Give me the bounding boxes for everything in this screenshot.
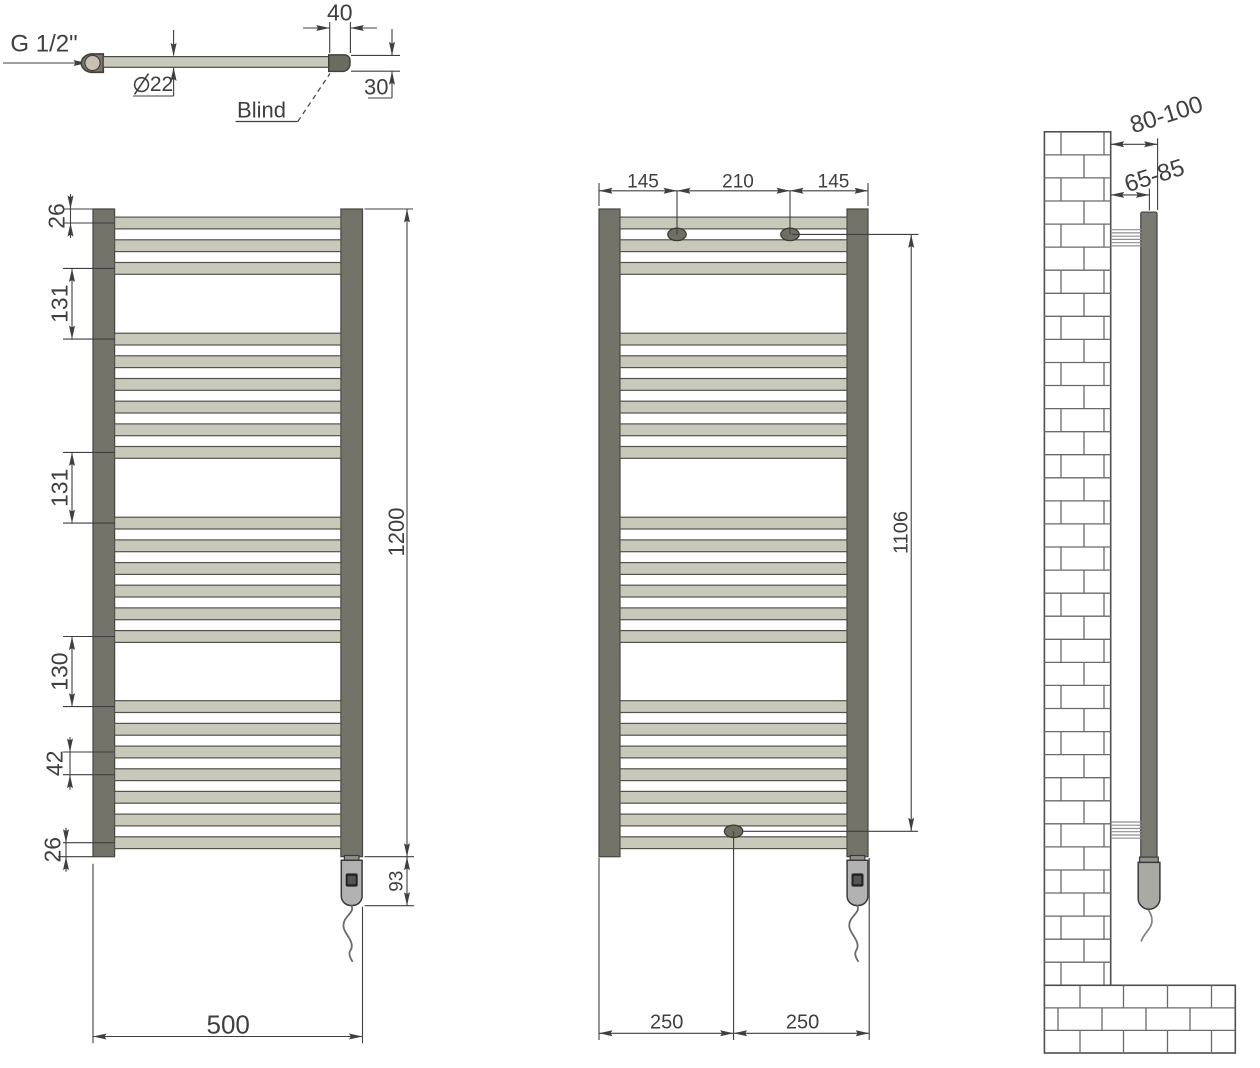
svg-text:93: 93 bbox=[386, 871, 407, 892]
svg-text:500: 500 bbox=[207, 1010, 250, 1040]
svg-text:40: 40 bbox=[327, 0, 353, 26]
svg-text:1200: 1200 bbox=[384, 508, 409, 557]
svg-text:130: 130 bbox=[47, 652, 73, 690]
svg-text:250: 250 bbox=[786, 1012, 819, 1034]
svg-text:250: 250 bbox=[650, 1012, 683, 1034]
svg-text:131: 131 bbox=[47, 285, 73, 323]
svg-text:1106: 1106 bbox=[891, 511, 913, 554]
svg-text:145: 145 bbox=[627, 171, 659, 192]
svg-text:145: 145 bbox=[818, 171, 850, 192]
svg-text:26: 26 bbox=[40, 837, 66, 863]
svg-text:210: 210 bbox=[722, 171, 754, 192]
svg-text:30: 30 bbox=[364, 75, 388, 100]
svg-text:131: 131 bbox=[47, 469, 73, 507]
svg-text:22: 22 bbox=[150, 73, 173, 96]
svg-text:Blind: Blind bbox=[237, 98, 286, 123]
svg-text:26: 26 bbox=[44, 203, 70, 229]
svg-text:42: 42 bbox=[42, 751, 68, 777]
svg-text:G 1/2": G 1/2" bbox=[10, 31, 77, 58]
